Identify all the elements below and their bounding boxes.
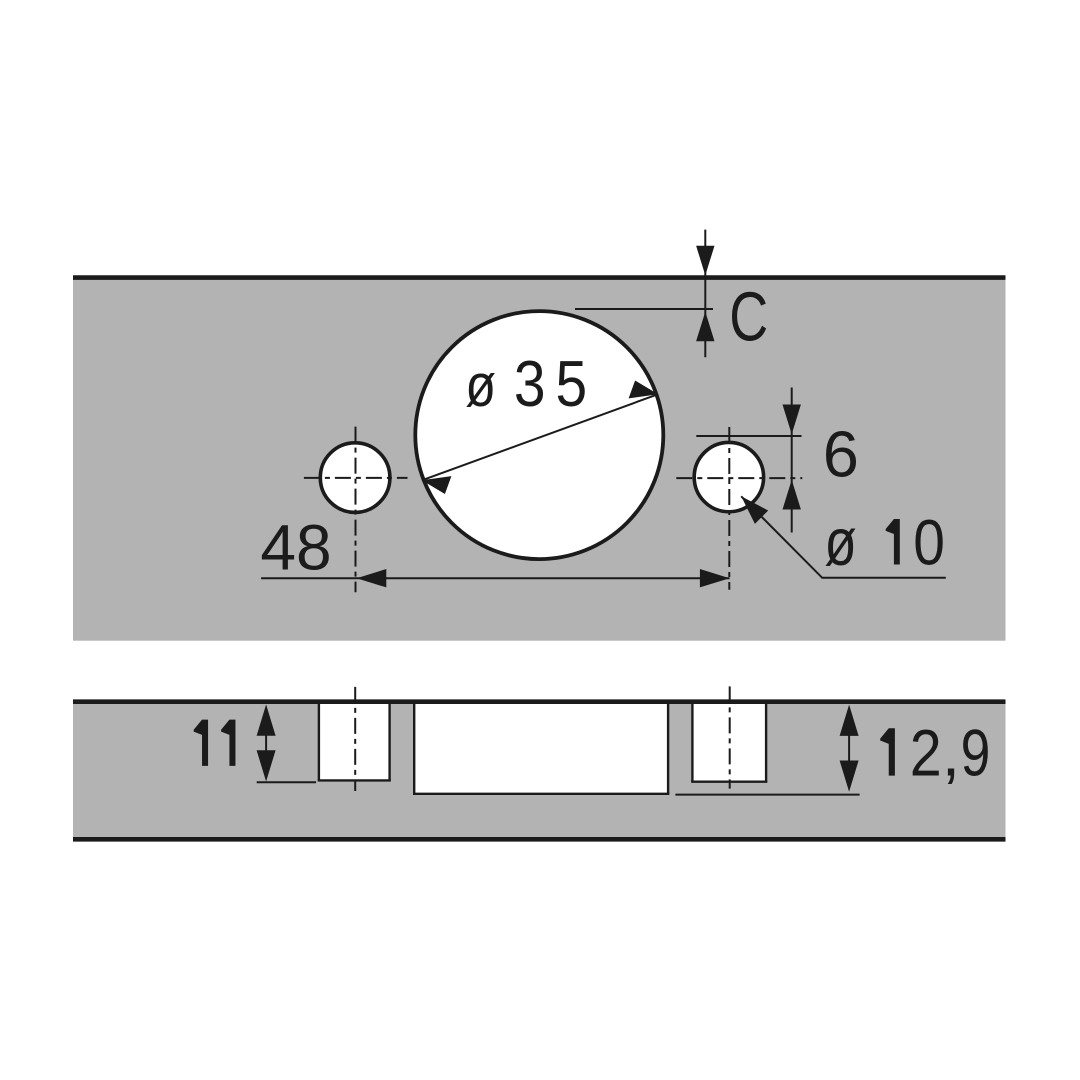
svg-text:5: 5 [556,347,588,419]
svg-text:ø: ø [824,504,856,579]
svg-text:ø: ø [465,352,496,419]
svg-text:9: 9 [961,716,991,790]
svg-text:C: C [729,278,768,356]
svg-text:0: 0 [913,506,945,578]
svg-text:,: , [942,716,960,790]
svg-text:4: 4 [260,512,296,584]
svg-text:6: 6 [823,418,859,491]
svg-text:3: 3 [514,347,546,419]
svg-text:2: 2 [910,717,942,791]
svg-text:8: 8 [296,512,332,584]
